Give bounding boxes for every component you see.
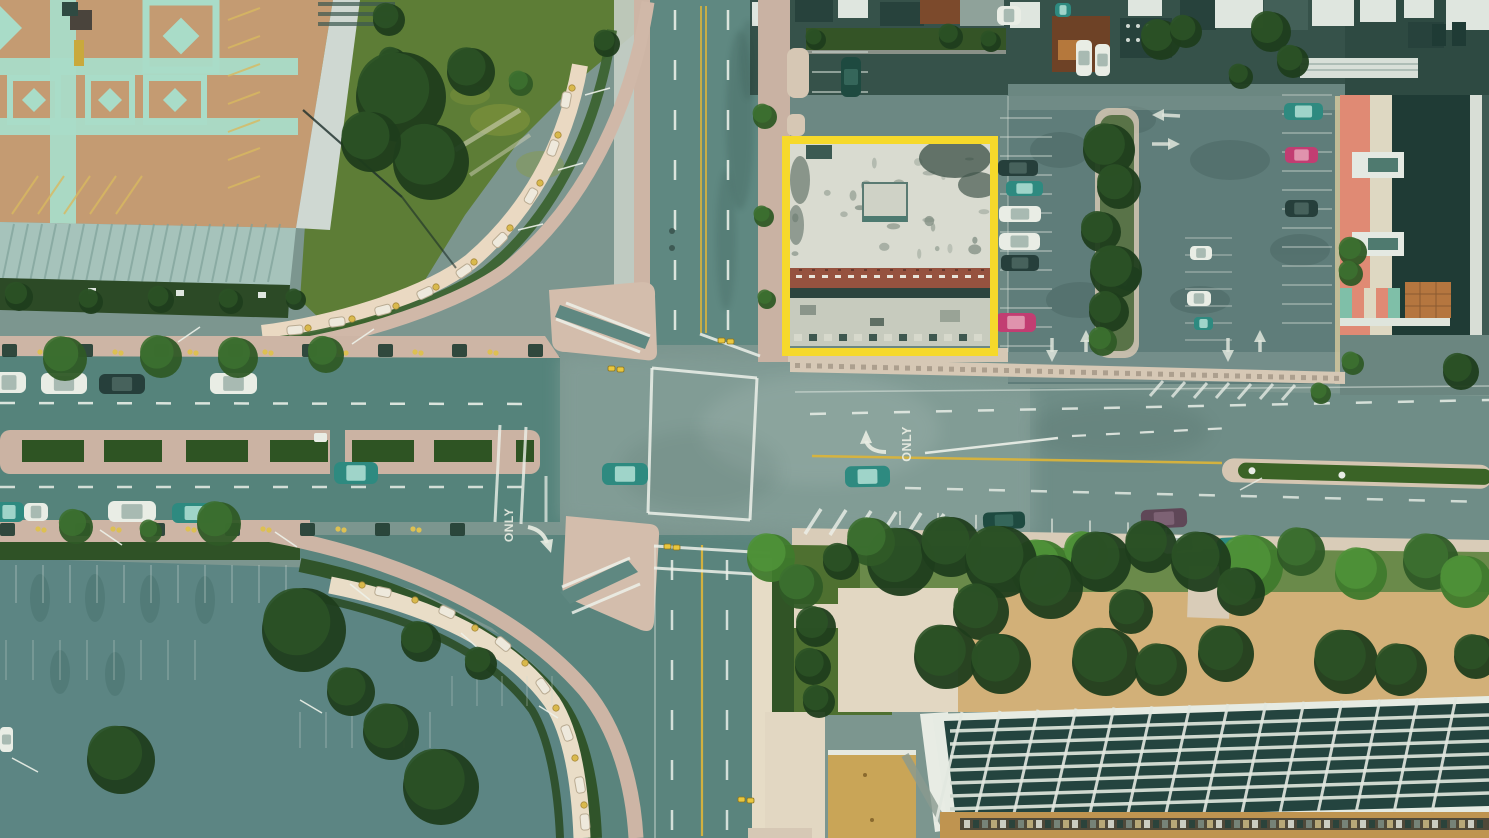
tree-crown bbox=[795, 648, 824, 677]
tiny-parked-car bbox=[1171, 820, 1177, 828]
roof-speckle bbox=[935, 246, 940, 251]
tree-crown bbox=[1339, 237, 1361, 259]
paver bbox=[1048, 369, 1053, 374]
car bbox=[1284, 103, 1323, 120]
roof-detail bbox=[864, 269, 867, 271]
paver bbox=[1334, 376, 1339, 381]
car bbox=[1076, 40, 1092, 76]
tiny-parked-car bbox=[973, 820, 979, 828]
tree-crown bbox=[1141, 19, 1173, 51]
car-glass bbox=[857, 469, 877, 484]
car-glass bbox=[121, 504, 142, 519]
flower-pot bbox=[268, 350, 273, 355]
car bbox=[99, 374, 145, 394]
car-glass bbox=[31, 506, 42, 519]
roof-dormer bbox=[874, 275, 880, 278]
storefront-awning bbox=[944, 334, 952, 341]
tree-crown bbox=[465, 647, 491, 673]
roof-detail bbox=[838, 269, 841, 271]
tree-crown bbox=[823, 543, 852, 572]
tiny-parked-car bbox=[1414, 820, 1420, 828]
car-glass bbox=[1012, 257, 1029, 268]
tiny-parked-car bbox=[1288, 820, 1294, 828]
tree-crown bbox=[1217, 567, 1255, 605]
tiny-parked-car bbox=[1468, 820, 1474, 828]
tree-crown bbox=[953, 583, 998, 628]
paver bbox=[872, 365, 877, 370]
tree-crown bbox=[1375, 643, 1417, 685]
tree-crown bbox=[342, 112, 390, 160]
tree-crown bbox=[1315, 630, 1366, 681]
car bbox=[108, 501, 156, 522]
roof-detail bbox=[968, 269, 971, 271]
tiny-parked-car bbox=[1216, 820, 1222, 828]
car-glass bbox=[1004, 9, 1015, 22]
tiny-parked-car bbox=[1342, 820, 1348, 828]
tree-planter bbox=[300, 523, 315, 536]
tree-crown bbox=[404, 749, 465, 810]
tiny-parked-car bbox=[1279, 820, 1285, 828]
roof-speckle bbox=[924, 216, 934, 226]
flower-pot bbox=[191, 527, 196, 532]
tree-crown bbox=[1083, 123, 1125, 165]
tiny-parked-car bbox=[1234, 820, 1240, 828]
paver bbox=[1147, 371, 1152, 376]
tiny-parked-car bbox=[1045, 820, 1051, 828]
car bbox=[1006, 181, 1043, 196]
storefront-awning bbox=[794, 334, 802, 341]
paver bbox=[1070, 370, 1075, 375]
flower-pot bbox=[335, 526, 340, 531]
tree-crown bbox=[1089, 327, 1111, 349]
east-parking-lot bbox=[1008, 96, 1345, 384]
flower-pot bbox=[410, 526, 415, 531]
flower-pot bbox=[493, 350, 498, 355]
tiny-parked-car bbox=[1054, 820, 1060, 828]
storefront-awning bbox=[839, 334, 847, 341]
flower-pot bbox=[110, 526, 115, 531]
tree-crown bbox=[1311, 383, 1327, 399]
planter-urn bbox=[507, 225, 513, 231]
flower-pot bbox=[112, 349, 117, 354]
median-hedge bbox=[434, 440, 492, 462]
flower-pot bbox=[262, 349, 267, 354]
tree-crown bbox=[263, 588, 330, 655]
tiny-parked-car bbox=[1180, 820, 1186, 828]
planter-urn bbox=[393, 303, 399, 309]
paver bbox=[1015, 368, 1020, 373]
storefront-awning bbox=[974, 334, 982, 341]
roof-dormer bbox=[822, 275, 828, 278]
tree-crown bbox=[1443, 353, 1472, 382]
roof-speckle bbox=[850, 190, 857, 200]
car-glass bbox=[1016, 183, 1032, 194]
tiny-parked-car bbox=[1423, 820, 1429, 828]
tree-planter bbox=[375, 523, 390, 536]
tree-crown bbox=[43, 336, 78, 371]
car-glass bbox=[1295, 106, 1312, 118]
planter-urn bbox=[472, 625, 478, 631]
tiny-parked-car bbox=[1270, 820, 1276, 828]
tree-planter bbox=[2, 344, 17, 357]
storefront-awning bbox=[959, 334, 967, 341]
planter-urn bbox=[412, 597, 418, 603]
car-glass bbox=[1007, 316, 1025, 329]
tiny-parked-car bbox=[1306, 820, 1312, 828]
tree-crown bbox=[308, 336, 337, 365]
paver bbox=[1202, 373, 1207, 378]
paver bbox=[839, 364, 844, 369]
roof-dormer bbox=[809, 275, 815, 278]
paver bbox=[1312, 375, 1317, 380]
tiny-parked-car bbox=[1108, 820, 1114, 828]
flower-pot bbox=[118, 350, 123, 355]
tree-crown bbox=[1251, 11, 1283, 43]
paver bbox=[1092, 370, 1097, 375]
traffic-signal bbox=[608, 366, 615, 371]
tree-crown bbox=[1440, 555, 1482, 597]
roof-speckle bbox=[887, 223, 900, 229]
ribbed-roof bbox=[0, 222, 296, 285]
tree-crown bbox=[140, 335, 174, 369]
tree-crown bbox=[327, 667, 365, 705]
tree-crown bbox=[1090, 245, 1132, 287]
tree-crown bbox=[1135, 643, 1177, 685]
paver bbox=[1224, 373, 1229, 378]
tree-crown bbox=[79, 289, 98, 308]
paver bbox=[960, 367, 965, 372]
roof-detail bbox=[825, 269, 828, 271]
rooftop-penthouse bbox=[863, 183, 907, 221]
car-glass bbox=[1078, 51, 1089, 65]
car bbox=[1001, 255, 1039, 271]
paver bbox=[1103, 370, 1108, 375]
tiny-parked-car bbox=[1333, 820, 1339, 828]
tree-planter bbox=[452, 344, 467, 357]
tiny-parked-car bbox=[1387, 820, 1393, 828]
planter-urn bbox=[553, 705, 559, 711]
roof-detail bbox=[851, 269, 854, 271]
tiny-parked-car bbox=[1135, 820, 1141, 828]
tree-crown bbox=[219, 289, 238, 308]
manhole bbox=[669, 228, 675, 234]
planter-urn bbox=[522, 660, 528, 666]
roof-dormer bbox=[939, 275, 945, 278]
tree-crown bbox=[1342, 352, 1360, 370]
paver bbox=[1059, 369, 1064, 374]
planter-urn bbox=[569, 85, 575, 91]
paver bbox=[828, 364, 833, 369]
paver bbox=[1301, 375, 1306, 380]
planter-urn bbox=[305, 325, 311, 331]
roof-speckle bbox=[947, 244, 952, 254]
planter-urn bbox=[433, 284, 439, 290]
orange-roof-block bbox=[1405, 282, 1451, 318]
car bbox=[0, 502, 24, 522]
bench bbox=[580, 814, 590, 831]
tree-crown bbox=[1073, 628, 1127, 682]
tree-crown bbox=[1229, 64, 1248, 83]
flower-pot bbox=[37, 349, 42, 354]
flower-pot bbox=[260, 526, 265, 531]
tiny-parked-car bbox=[1324, 820, 1330, 828]
car bbox=[997, 6, 1021, 25]
planter-urn bbox=[555, 132, 561, 138]
flower-pot bbox=[35, 526, 40, 531]
rooftop-machine bbox=[74, 40, 84, 66]
car-glass bbox=[995, 514, 1014, 527]
storefront-awning bbox=[929, 334, 937, 341]
lot-hedge bbox=[0, 542, 300, 560]
tiny-parked-car bbox=[1225, 820, 1231, 828]
paver bbox=[905, 366, 910, 371]
tiny-parked-car bbox=[1207, 820, 1213, 828]
paver bbox=[1004, 368, 1009, 373]
median-hedge bbox=[22, 440, 84, 462]
paver bbox=[982, 367, 987, 372]
roof-detail bbox=[877, 269, 880, 271]
car-glass bbox=[1059, 5, 1066, 15]
storefront-awning bbox=[884, 334, 892, 341]
paver bbox=[1136, 371, 1141, 376]
paver bbox=[1180, 372, 1185, 377]
flower-pot bbox=[418, 350, 423, 355]
tiny-parked-car bbox=[1162, 820, 1168, 828]
car bbox=[1095, 44, 1110, 76]
flower-pot bbox=[266, 527, 271, 532]
paver bbox=[883, 365, 888, 370]
traffic-signal bbox=[617, 367, 624, 372]
tree-crown bbox=[1170, 15, 1196, 41]
car bbox=[24, 503, 48, 521]
paver bbox=[971, 367, 976, 372]
storefront-awning bbox=[809, 334, 817, 341]
flower-pot bbox=[416, 527, 421, 532]
tree-crown bbox=[88, 726, 142, 780]
car bbox=[998, 160, 1038, 176]
tiny-parked-car bbox=[1315, 820, 1321, 828]
tiny-parked-car bbox=[1297, 820, 1303, 828]
tree-crown bbox=[1277, 45, 1303, 71]
tree-crown bbox=[1109, 589, 1144, 624]
median-hedge bbox=[186, 440, 248, 462]
roof-detail bbox=[981, 269, 984, 271]
car-glass bbox=[2, 735, 11, 745]
roof-dormer bbox=[848, 275, 854, 278]
median-hedge bbox=[352, 440, 414, 462]
median-hedge bbox=[270, 440, 328, 462]
straight-arrow bbox=[1162, 115, 1180, 116]
paver bbox=[1114, 371, 1119, 376]
tiny-parked-car bbox=[1252, 820, 1258, 828]
aerial-photo-canvas: ONLY ONLY bbox=[0, 0, 1489, 838]
tree-crown bbox=[1020, 555, 1071, 606]
tiny-parked-car bbox=[964, 820, 970, 828]
car bbox=[1055, 3, 1071, 17]
paver bbox=[795, 363, 800, 368]
roof-detail bbox=[942, 269, 945, 271]
car bbox=[996, 313, 1036, 332]
tree-crown bbox=[59, 509, 86, 536]
car bbox=[1187, 291, 1211, 306]
tiny-parked-car bbox=[1396, 820, 1402, 828]
flower-pot bbox=[412, 349, 417, 354]
parking-deck-roof bbox=[0, 0, 333, 228]
rooftop-solar-array bbox=[1432, 24, 1446, 46]
paver bbox=[1235, 373, 1240, 378]
bench bbox=[287, 325, 304, 335]
traffic-signal bbox=[738, 797, 745, 802]
tree-crown bbox=[1198, 625, 1243, 670]
tiny-parked-car bbox=[1144, 820, 1150, 828]
planter-urn bbox=[581, 802, 587, 808]
tree-crown bbox=[373, 3, 399, 29]
paver bbox=[806, 363, 811, 368]
median-hedge bbox=[104, 440, 162, 462]
roof-speckle bbox=[824, 190, 831, 196]
paver bbox=[1026, 369, 1031, 374]
tiny-parked-car bbox=[1072, 820, 1078, 828]
tree-crown bbox=[1172, 532, 1220, 580]
tree-crown bbox=[286, 289, 302, 305]
tiny-parked-car bbox=[1027, 820, 1033, 828]
tree-crown bbox=[401, 621, 433, 653]
flower-pot bbox=[487, 349, 492, 354]
tree-crown bbox=[394, 124, 455, 185]
roof-dormer bbox=[900, 275, 906, 278]
tiny-parked-car bbox=[1351, 820, 1357, 828]
traffic-signal bbox=[747, 798, 754, 803]
paver bbox=[927, 366, 932, 371]
only-marking-east: ONLY bbox=[900, 426, 914, 462]
only-marking-west: ONLY bbox=[502, 508, 516, 542]
tiny-parked-car bbox=[1198, 820, 1204, 828]
roof-detail bbox=[903, 269, 906, 271]
roof-speckle bbox=[979, 209, 990, 214]
car bbox=[841, 57, 861, 97]
storefront-awning bbox=[854, 334, 862, 341]
tree-planter bbox=[378, 344, 393, 357]
tiny-parked-car bbox=[1243, 820, 1249, 828]
tiny-parked-car bbox=[1261, 820, 1267, 828]
paver bbox=[1246, 374, 1251, 379]
car-glass bbox=[2, 375, 17, 390]
tree-crown bbox=[5, 282, 27, 304]
car bbox=[999, 206, 1041, 222]
tree-crown bbox=[148, 286, 169, 307]
paver bbox=[1191, 372, 1196, 377]
tree-crown bbox=[1277, 527, 1315, 565]
tree-crown bbox=[922, 517, 970, 565]
tree-crown bbox=[747, 533, 785, 571]
roof-speckle bbox=[872, 158, 877, 169]
tiny-parked-car bbox=[1189, 820, 1195, 828]
roof-detail bbox=[955, 269, 958, 271]
roof-dormer bbox=[965, 275, 971, 278]
storefront-awning bbox=[914, 334, 922, 341]
traffic-signal bbox=[673, 545, 680, 550]
storefront-awning bbox=[899, 334, 907, 341]
paver bbox=[1213, 373, 1218, 378]
paver bbox=[894, 365, 899, 370]
tree-crown bbox=[779, 564, 814, 599]
flower-pot bbox=[185, 526, 190, 531]
planter-urn bbox=[359, 582, 365, 588]
flower-pot bbox=[193, 350, 198, 355]
tree-crown bbox=[509, 71, 528, 90]
mustard-roof bbox=[828, 755, 916, 838]
tree-crown bbox=[594, 30, 615, 51]
car-glass bbox=[112, 377, 132, 391]
traffic-signal bbox=[664, 544, 671, 549]
tree-crown bbox=[197, 501, 232, 536]
tree-crown bbox=[1125, 520, 1167, 562]
storefront-awning bbox=[824, 334, 832, 341]
roof-detail bbox=[812, 269, 815, 271]
planter-urn bbox=[471, 259, 477, 265]
traffic-signal bbox=[718, 338, 725, 343]
paver bbox=[993, 368, 998, 373]
tree-crown bbox=[803, 685, 829, 711]
car-glass bbox=[1097, 54, 1108, 67]
tiny-parked-car bbox=[1459, 820, 1465, 828]
car-glass bbox=[346, 465, 365, 480]
roof-speckle bbox=[879, 243, 889, 251]
tiny-parked-car bbox=[1360, 820, 1366, 828]
tiny-parked-car bbox=[1441, 820, 1447, 828]
flower-pot bbox=[187, 349, 192, 354]
traffic-signal bbox=[727, 339, 734, 344]
tiny-parked-car bbox=[982, 820, 988, 828]
car-glass bbox=[2, 505, 15, 519]
car-glass bbox=[223, 376, 244, 391]
paver bbox=[1158, 372, 1163, 377]
tiny-parked-car bbox=[1009, 820, 1015, 828]
car-glass bbox=[1009, 162, 1027, 173]
car bbox=[602, 463, 648, 485]
roof-speckle bbox=[917, 249, 921, 259]
car-glass bbox=[1294, 203, 1309, 215]
roof-detail bbox=[890, 269, 893, 271]
tree-crown bbox=[939, 24, 958, 43]
car-glass bbox=[1196, 248, 1206, 258]
flower-pot bbox=[343, 350, 348, 355]
paver bbox=[817, 364, 822, 369]
tiny-parked-car bbox=[1099, 820, 1105, 828]
tree-planter bbox=[528, 344, 543, 357]
planter-urn bbox=[349, 316, 355, 322]
tree-crown bbox=[796, 606, 828, 638]
tiny-parked-car bbox=[1369, 820, 1375, 828]
roof-dormer bbox=[952, 275, 958, 278]
solar-roof-building bbox=[905, 696, 1489, 838]
tree-crown bbox=[1335, 547, 1377, 589]
tiny-parked-car bbox=[1153, 820, 1159, 828]
paver bbox=[938, 366, 943, 371]
roof-speckle bbox=[968, 244, 981, 254]
paver bbox=[861, 365, 866, 370]
tree-crown bbox=[1339, 261, 1358, 280]
tiny-parked-car bbox=[1018, 820, 1024, 828]
car bbox=[1285, 200, 1318, 217]
car bbox=[0, 727, 13, 752]
roof-dormer bbox=[913, 275, 919, 278]
tiny-parked-car bbox=[1081, 820, 1087, 828]
paver bbox=[949, 367, 954, 372]
tree-crown bbox=[754, 206, 770, 222]
tree-crown bbox=[1097, 164, 1132, 199]
tiny-parked-car bbox=[991, 820, 997, 828]
